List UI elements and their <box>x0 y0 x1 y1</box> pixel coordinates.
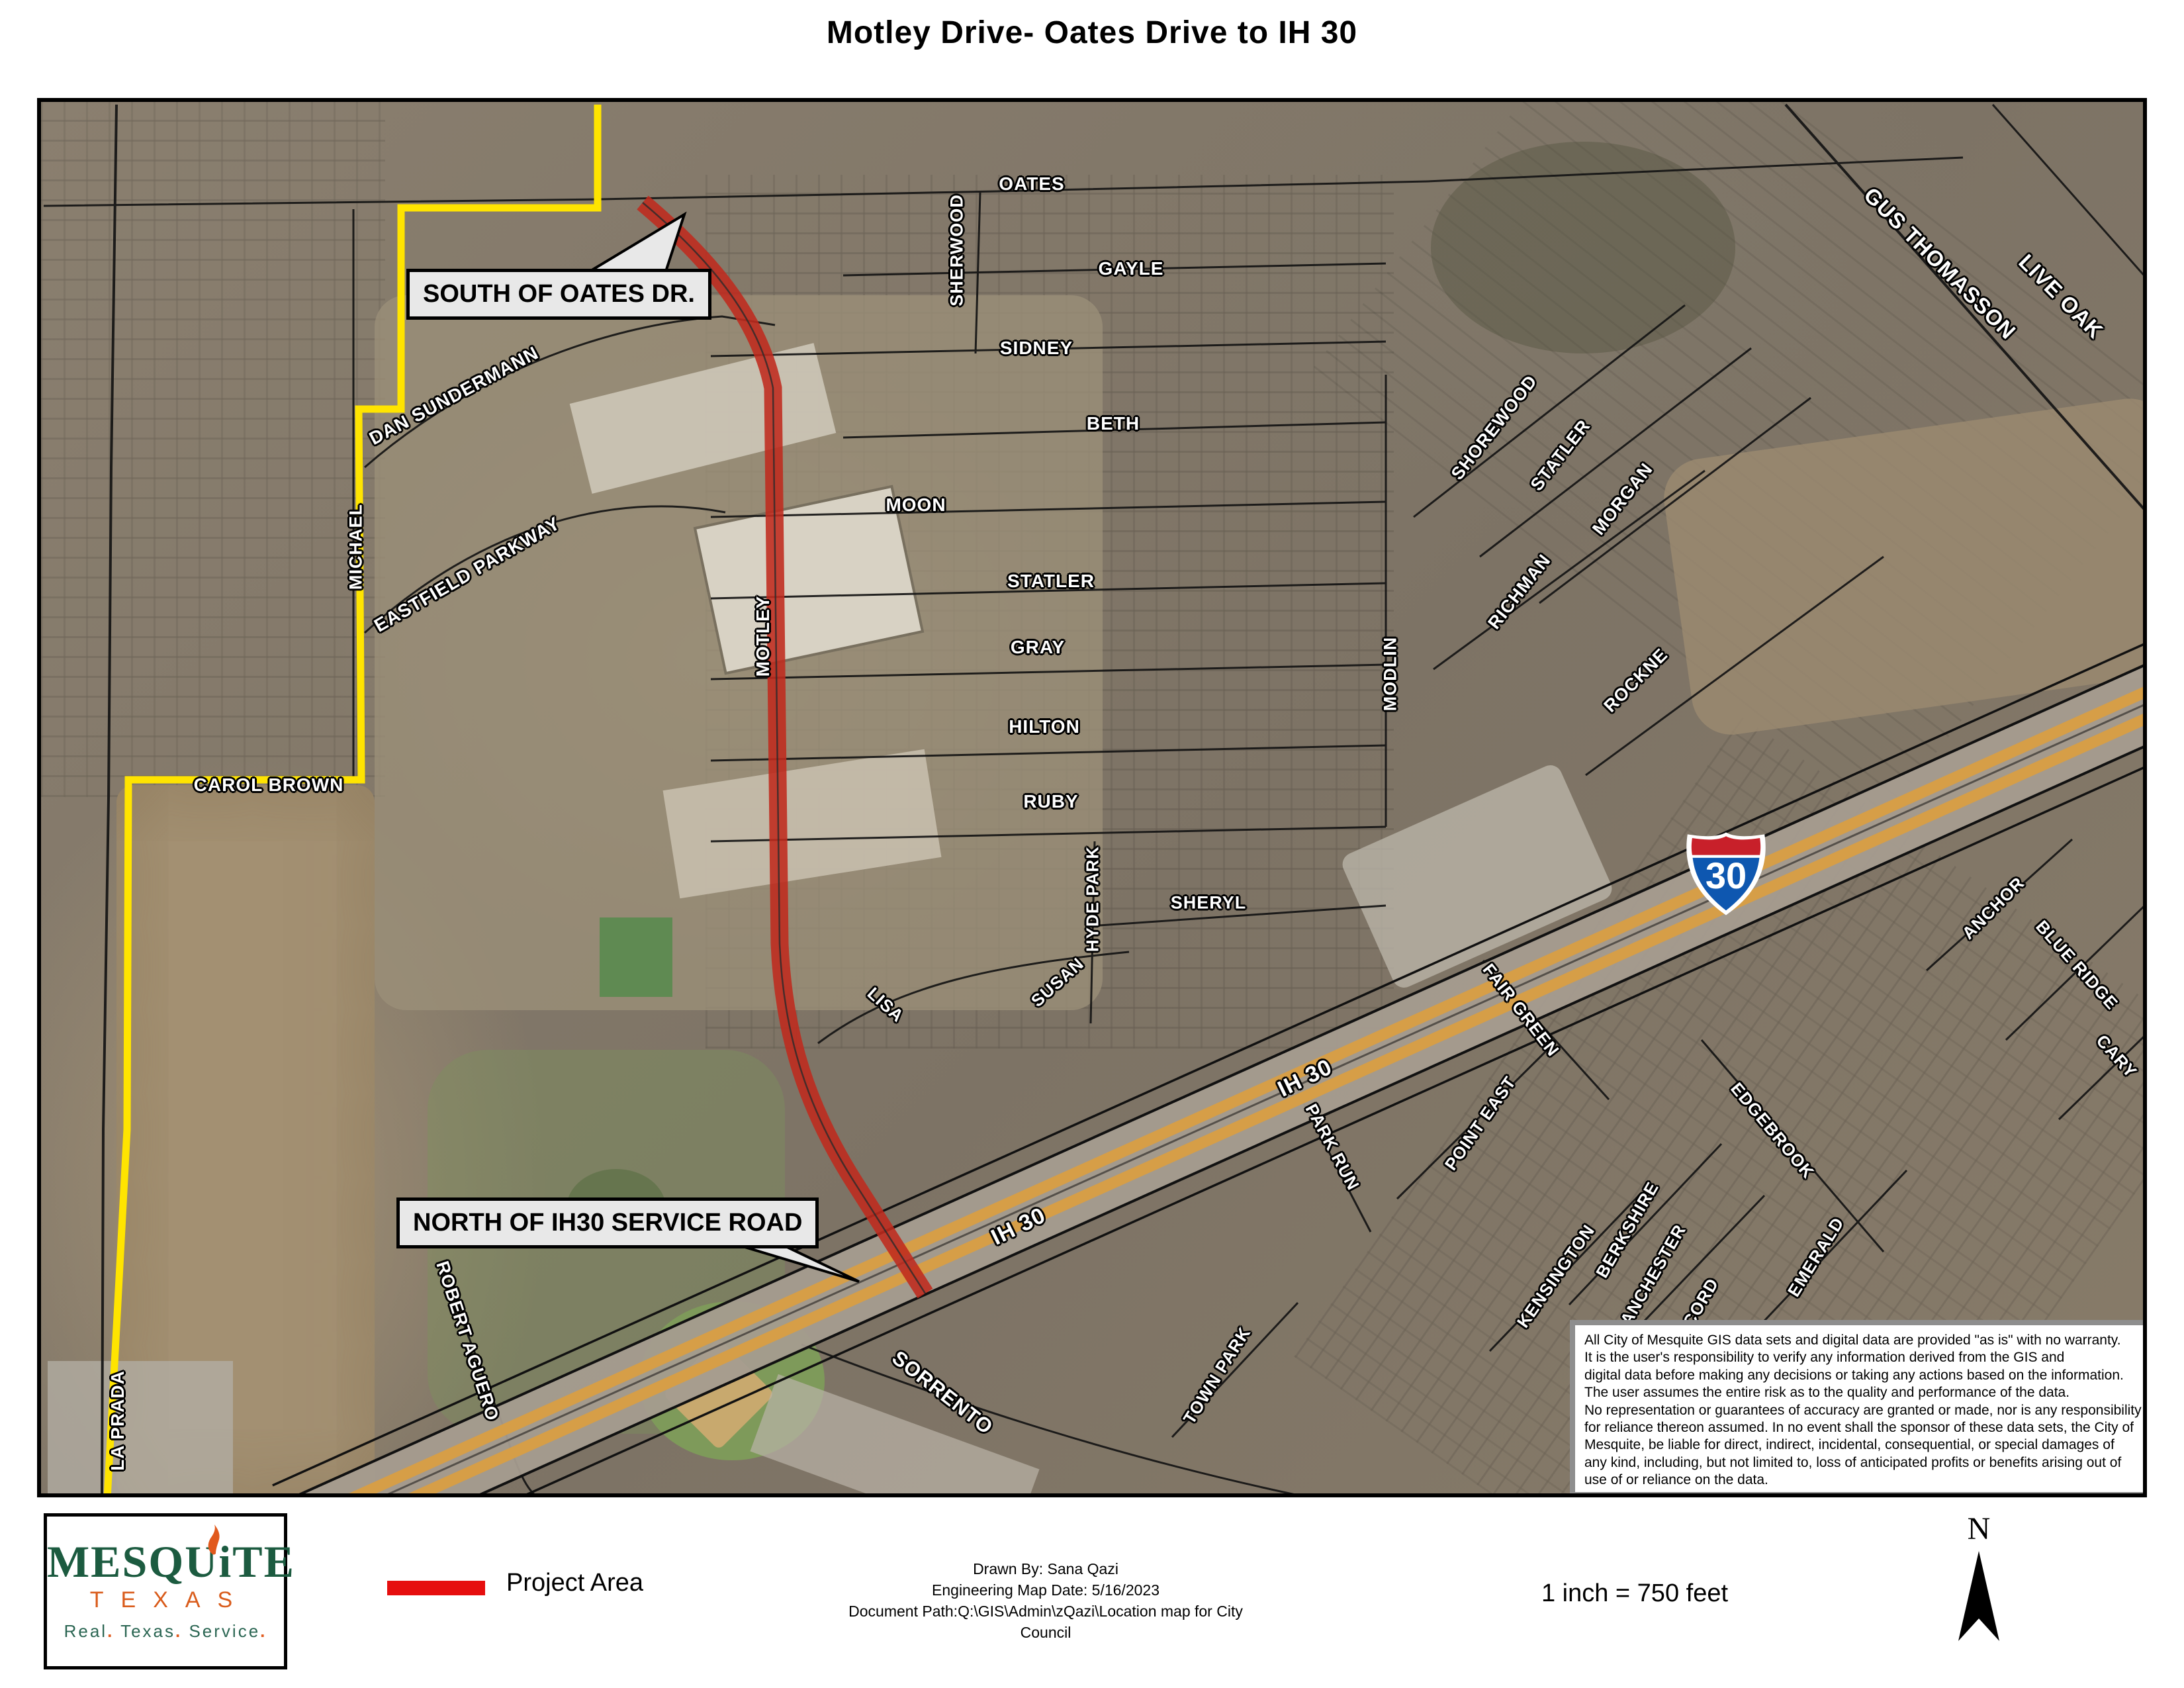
scale-text: 1 inch = 750 feet <box>1529 1579 1741 1608</box>
street-label-michael: MICHAEL <box>346 504 367 590</box>
callout-north-of-ih30: NORTH OF IH30 SERVICE ROAD <box>396 1197 819 1248</box>
flame-icon <box>204 1524 221 1558</box>
callout-pointer-south <box>590 214 684 271</box>
map-canvas: 30 OATESSHERWOODGAYLESIDNEYBETHMOONSTATL… <box>37 98 2147 1497</box>
street-label-statler: STATLER <box>1007 571 1095 592</box>
page-title: Motley Drive- Oates Drive to IH 30 <box>0 15 2184 51</box>
street-label-hilton: HILTON <box>1009 716 1080 737</box>
gis-disclaimer-text: All City of Mesquite GIS data sets and d… <box>1570 1320 2147 1497</box>
credit-line: Document Path:Q:\GIS\Admin\zQazi\Locatio… <box>847 1601 1244 1643</box>
street-label-hyde-park: HYDE PARK <box>1083 846 1103 952</box>
map-vector-layer <box>41 102 2147 1497</box>
logo-wordmark: MESQUiTE <box>47 1542 284 1581</box>
street-lines <box>44 105 2147 1497</box>
street-label-motley: MOTLEY <box>752 596 774 677</box>
street-label-oates: OATES <box>999 173 1064 195</box>
tagline-word: Real <box>64 1621 107 1641</box>
interstate-30-shield: 30 <box>1679 831 1773 916</box>
tagline-dot: . <box>175 1621 182 1641</box>
street-label-sherwood: SHERWOOD <box>947 194 968 306</box>
north-arrow: N <box>1939 1511 2019 1650</box>
logo-word-part: TE <box>232 1536 295 1587</box>
credit-line: Engineering Map Date: 5/16/2023 <box>847 1579 1244 1601</box>
street-label-beth: BETH <box>1087 413 1140 434</box>
project-route-highlight <box>643 203 925 1293</box>
credit-line: Drawn By: Sana Qazi <box>847 1558 1244 1579</box>
tagline-word: Service <box>189 1621 260 1641</box>
street-label-moon: MOON <box>886 494 946 516</box>
street-label-modlin: MODLIN <box>1381 637 1401 711</box>
street-label-sheryl: SHERYL <box>1171 893 1247 914</box>
street-label-sidney: SIDNEY <box>1000 338 1073 359</box>
logo-tagline: Real. Texas. Service. <box>47 1621 284 1642</box>
tagline-word: Texas <box>120 1621 175 1641</box>
document-page: { "title": "Motley Drive- Oates Drive to… <box>0 0 2184 1688</box>
street-label-gayle: GAYLE <box>1099 258 1164 279</box>
map-credits: Drawn By: Sana QaziEngineering Map Date:… <box>847 1558 1244 1643</box>
logo-texas-text: TEXAS <box>47 1588 284 1612</box>
mesquite-logo: MESQUiTE TEXAS Real. Texas. Service. <box>44 1513 287 1669</box>
north-arrow-icon <box>1949 1547 2009 1646</box>
street-label-ruby: RUBY <box>1023 791 1078 812</box>
legend-project-area-label: Project Area <box>506 1569 643 1597</box>
tagline-dot: . <box>107 1621 114 1641</box>
legend-project-area-swatch <box>387 1581 485 1595</box>
callout-south-of-oates: SOUTH OF OATES DR. <box>406 269 711 320</box>
interstate-number: 30 <box>1679 854 1773 897</box>
street-label-la-prada: LA PRADA <box>107 1370 128 1471</box>
street-label-carol-brown: CAROL BROWN <box>194 774 344 796</box>
logo-word-part: MESQU <box>47 1536 218 1587</box>
tagline-dot: . <box>260 1621 267 1641</box>
street-label-gray: GRAY <box>1011 637 1065 658</box>
north-label: N <box>1939 1511 2019 1547</box>
